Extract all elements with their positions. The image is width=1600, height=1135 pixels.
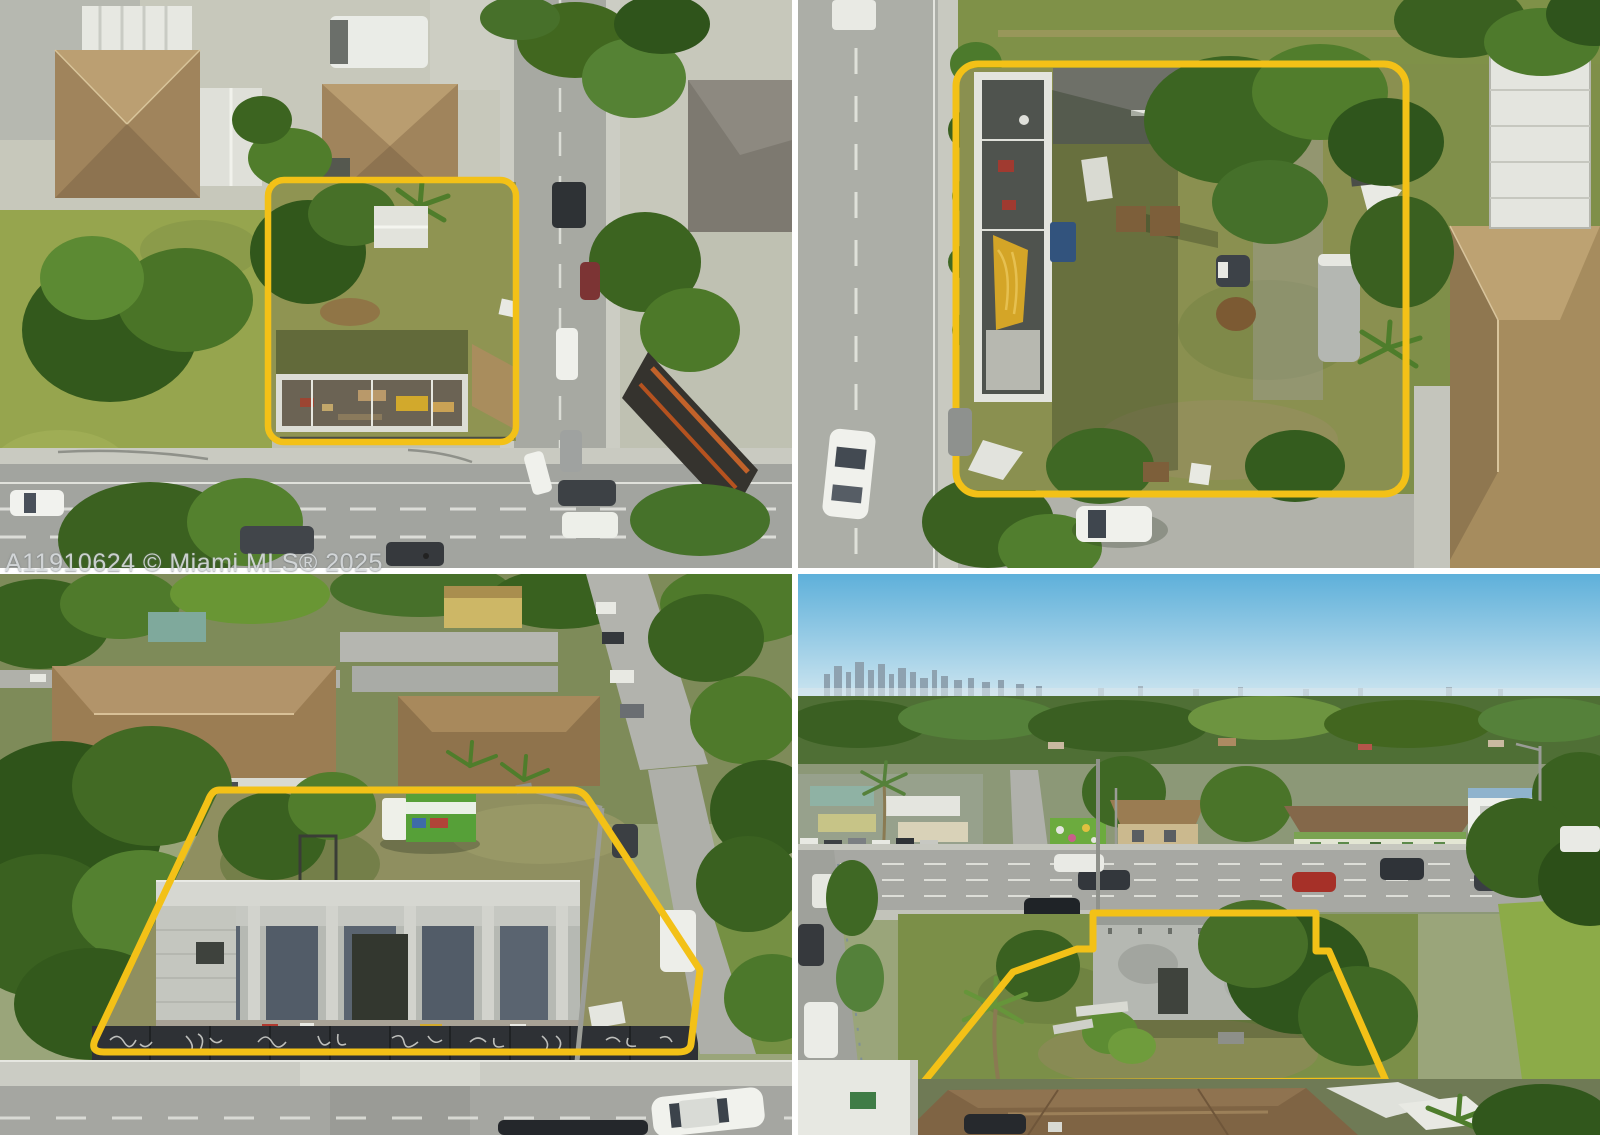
teal-house <box>148 612 206 642</box>
brown-roof-2 <box>398 696 600 786</box>
dark-car <box>498 1120 648 1135</box>
unfinished-building <box>156 880 626 1036</box>
white-van <box>804 1002 838 1058</box>
photo-oblique-concrete-shell <box>0 574 792 1135</box>
photo-oblique-skyline <box>798 574 1600 1135</box>
white-building-corner <box>798 1060 918 1135</box>
subject-lot <box>898 900 1418 1090</box>
dark-doorway <box>352 934 408 1020</box>
right-lawn <box>1466 798 1600 1094</box>
brush-pile <box>1216 297 1256 331</box>
photo-aerial-top-down-wide <box>0 0 792 568</box>
sky <box>798 574 1600 700</box>
tan-house <box>1110 800 1206 848</box>
white-sedan-street <box>822 428 877 520</box>
dark-car <box>964 1114 1026 1134</box>
blue-tarp <box>1050 222 1076 262</box>
street-left <box>798 0 958 568</box>
photo-collage: A11910624 © Miami MLS® 2025 <box>0 0 1600 1135</box>
subject-lot <box>956 44 1454 504</box>
green-dumpster <box>850 1092 876 1109</box>
subject-lot <box>250 180 517 442</box>
wrecked-car <box>1216 255 1250 287</box>
food-truck <box>380 794 480 854</box>
white-awning <box>1490 54 1590 228</box>
house-right <box>1450 226 1600 568</box>
block-wall-left <box>156 906 236 1020</box>
house-roof-brown-left <box>55 50 200 198</box>
treeline-band <box>798 696 1600 768</box>
roofless-building <box>974 72 1052 402</box>
roofless-building <box>276 374 468 432</box>
foreground-street <box>0 1060 792 1135</box>
photo-aerial-top-down-close <box>798 0 1600 568</box>
white-car <box>556 328 578 380</box>
maroon-car <box>580 262 600 300</box>
parked-dark-car <box>552 182 586 228</box>
